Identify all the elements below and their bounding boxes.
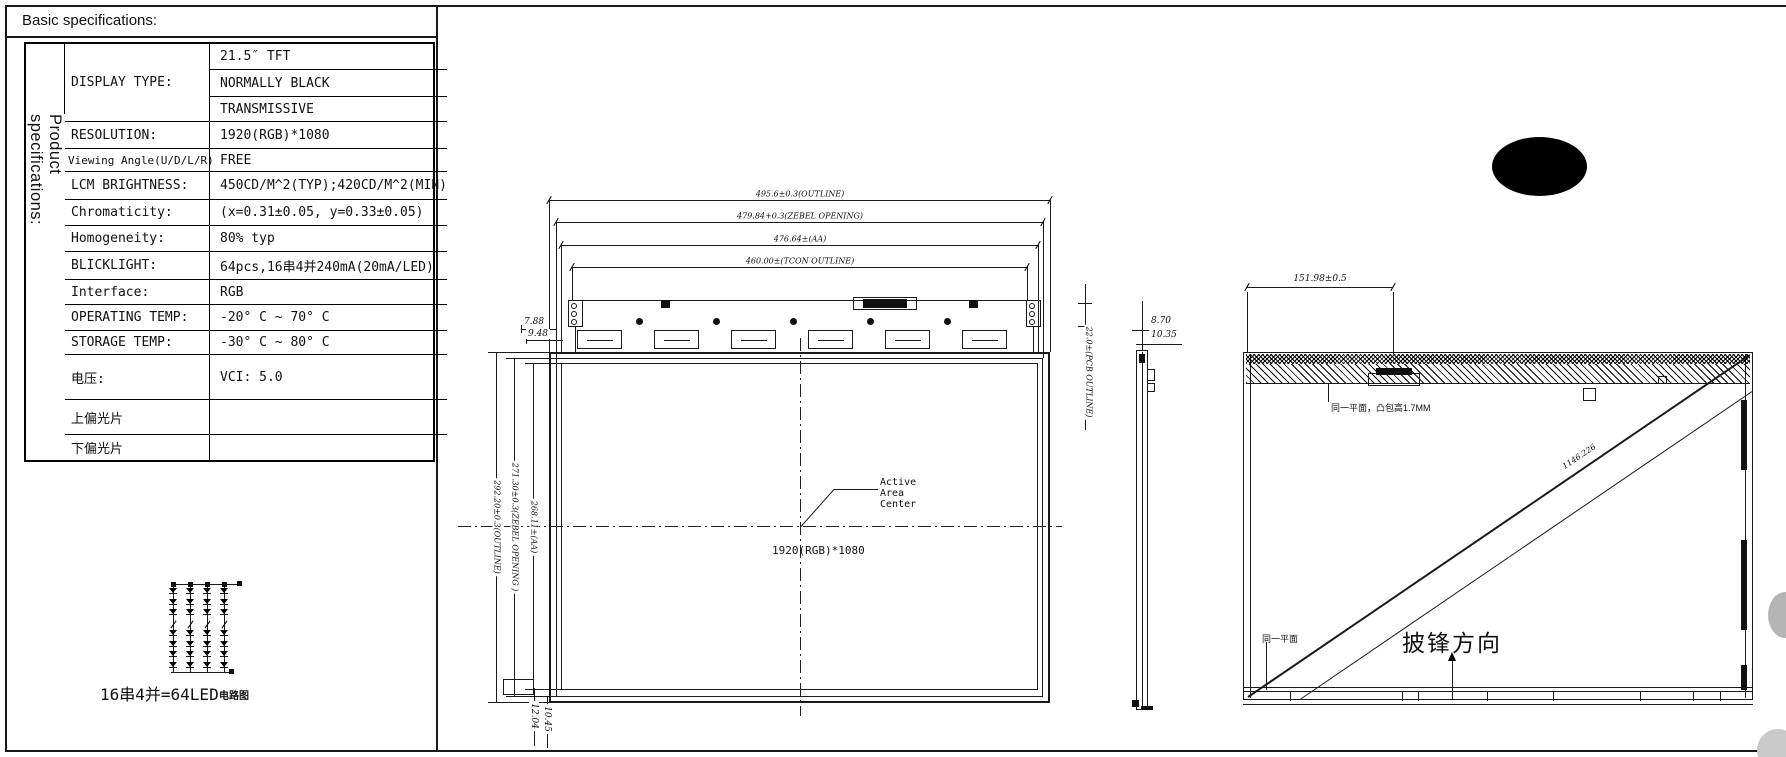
strip-edge: [1033, 327, 1034, 352]
rear-top-hatch: [1246, 364, 1750, 383]
led-cathode-bar: [220, 667, 228, 668]
led-cathode-bar: [220, 646, 228, 647]
stiffener-mark: [818, 340, 844, 341]
spec-label: 上偏光片: [65, 400, 210, 435]
led-cathode-bar: [186, 614, 194, 615]
strip-edge: [575, 327, 576, 352]
spec-label: STORAGE TEMP:: [65, 331, 210, 355]
led-bus-bottom: [171, 672, 232, 673]
dim-870: 8.70: [1149, 316, 1173, 326]
led-cathode-bar: [203, 656, 211, 657]
rear-bottom-tick: [1640, 692, 1641, 701]
led-column-wire: [207, 584, 208, 672]
spec-value: RGB: [210, 280, 447, 305]
dim-extension: [488, 702, 549, 703]
strip-component: [661, 300, 670, 308]
connector-pin: [1029, 303, 1035, 309]
active-area-label: Active: [880, 477, 916, 488]
dim-extension: [488, 352, 549, 353]
dim-width-bezel: 479.84+0.3(ZEBEL OPENING): [735, 212, 865, 221]
dim-height-outline: 292.20±0.3(OUTLINE): [493, 478, 502, 576]
dim-extension: [1247, 292, 1248, 352]
corner-step: [503, 679, 534, 695]
dim-line-tcon-w: [572, 267, 1027, 268]
rear-edge-inner: [1250, 354, 1251, 698]
spec-value-display-type: 21.5″ TFT: [210, 44, 447, 70]
rear-detail-square: [1583, 388, 1596, 401]
led-bus-node: [205, 582, 210, 587]
dim-extension: [556, 222, 557, 358]
led-cathode-bar: [220, 614, 228, 615]
leader-line: [1266, 642, 1267, 690]
dim-line-rear-top: [1247, 287, 1393, 288]
spec-value: VCI: 5.0: [210, 355, 447, 400]
strip-dot: [867, 318, 874, 325]
rear-bottom-tick: [1402, 692, 1403, 701]
dim-width-tcon: 460.00±(TCON OUTLINE): [744, 257, 856, 266]
dim-extension: [525, 363, 561, 364]
led-cathode-bar: [186, 604, 194, 605]
rear-bottom-tick: [1487, 692, 1488, 701]
dim-extension: [572, 267, 573, 300]
strip-dot: [713, 318, 720, 325]
active-area-label: Area: [880, 488, 904, 499]
led-cathode-bar: [186, 635, 194, 636]
led-cathode-bar: [220, 604, 228, 605]
led-cathode-bar: [203, 646, 211, 647]
rear-bottom-line: [1243, 704, 1753, 705]
led-cathode-bar: [203, 614, 211, 615]
flat-note-top: 同一平面，凸包高1.7MM: [1331, 401, 1431, 414]
dim-line-bezel-w: [556, 222, 1043, 223]
dim-line-1035: [1136, 344, 1182, 345]
led-cathode-bar: [186, 667, 194, 668]
dim-tickline: [1078, 303, 1092, 304]
sheet-border-top: [5, 5, 1786, 7]
stiffener-mark: [664, 340, 690, 341]
led-cathode-bar: [220, 635, 228, 636]
sheet-border-bottom: [5, 750, 1786, 752]
led-column-wire: [190, 584, 191, 672]
spec-value: -20° C ~ 70° C: [210, 305, 447, 331]
rear-edge-detail: [1741, 400, 1747, 470]
spec-label: Chromaticity:: [65, 200, 210, 226]
rear-bottom-tick: [1290, 692, 1291, 701]
dim-extension: [561, 245, 562, 352]
spec-value: 450CD/M^2(TYP);420CD/M^2(MIN): [210, 172, 447, 200]
spec-value: [210, 435, 447, 460]
led-cathode-bar: [169, 614, 177, 615]
strip-component: [969, 300, 978, 308]
dim-extension: [1038, 245, 1039, 352]
spec-table: Product specifications:DISPLAY TYPE:21.5…: [24, 42, 435, 462]
rear-bottom-tick: [1418, 692, 1419, 701]
rear-hatch-border: [1246, 383, 1750, 384]
centerline-horizontal: [458, 526, 1062, 527]
side-component: [1147, 383, 1155, 392]
side-profile-inner: [1142, 352, 1143, 708]
connector-pin: [1029, 319, 1035, 325]
dim-1204: 12.04: [529, 701, 539, 731]
spec-value: -30° C ~ 80° C: [210, 331, 447, 355]
led-cathode-bar: [169, 604, 177, 605]
led-cathode-bar: [186, 656, 194, 657]
dim-height-bezel: 271.30±0.3(ZEBEL OPENING ): [511, 461, 520, 594]
led-cathode-bar: [169, 635, 177, 636]
led-bus-node: [222, 582, 227, 587]
side-foot: [1141, 706, 1153, 710]
spec-value-display-type: TRANSMISSIVE: [210, 97, 447, 122]
led-cathode-bar: [169, 646, 177, 647]
spec-value: (x=0.31±0.05, y=0.33±0.05): [210, 200, 447, 226]
pcb-strip-top: [583, 300, 1026, 301]
basic-specs-title: Basic specifications:: [22, 12, 157, 29]
side-foot: [1132, 700, 1139, 707]
led-cathode-bar: [169, 593, 177, 594]
stiffener-mark: [587, 340, 613, 341]
spec-label-display-type: DISPLAY TYPE:: [65, 44, 210, 122]
dim-line-outline-w: [549, 200, 1050, 201]
led-cathode-bar: [169, 656, 177, 657]
dim-extension: [1393, 292, 1394, 354]
spec-label: LCM BRIGHTNESS:: [65, 172, 210, 200]
spec-label: Viewing Angle(U/D/L/R): [65, 149, 210, 172]
led-diagram-label: 16串4并=64LED: [100, 681, 219, 705]
led-column-wire: [173, 584, 174, 672]
side-component: [1147, 369, 1155, 381]
rear-bottom-line: [1243, 687, 1753, 688]
resolution-label: 1920(RGB)*1080: [772, 544, 865, 557]
led-column-wire: [224, 584, 225, 672]
dim-extension: [1050, 200, 1051, 352]
led-diagram-label-suffix: 电路图: [219, 687, 249, 702]
dim-1035: 10.35: [1149, 330, 1179, 340]
stiffener-mark: [741, 340, 767, 341]
connector-pin: [1029, 311, 1035, 317]
rear-component: [1376, 368, 1412, 375]
spec-value-display-type: NORMALLY BLACK: [210, 70, 447, 97]
spec-sheet: Basic specifications:495.6±0.3(OUTLINE)4…: [0, 0, 1786, 757]
led-cathode-bar: [186, 646, 194, 647]
dim-width-aa: 476.64±(AA): [772, 235, 829, 244]
rear-detail-square: [1658, 376, 1667, 384]
leader-line: [834, 489, 878, 490]
edge-stamp: [1757, 729, 1786, 757]
strip-dot: [636, 318, 643, 325]
spec-label: 电压:: [65, 355, 210, 400]
spec-value: 64pcs,16串4并240mA(20mA/LED): [210, 252, 447, 280]
dim-788: 7.88: [522, 317, 546, 327]
sheet-border-left: [5, 5, 7, 752]
spec-value: FREE: [210, 149, 447, 172]
stiffener-mark: [972, 340, 998, 341]
dim-948: 9.48: [526, 329, 550, 339]
spec-label: Interface:: [65, 280, 210, 305]
strip-dot: [944, 318, 951, 325]
stiffener-mark: [895, 340, 921, 341]
leader-arrow-up: [1448, 652, 1456, 661]
led-bus-node: [229, 669, 234, 674]
spec-label: BLICKLIGHT:: [65, 252, 210, 280]
spec-label: OPERATING TEMP:: [65, 305, 210, 331]
spec-label: Homogeneity:: [65, 226, 210, 252]
spec-label: 下偏光片: [65, 435, 210, 460]
led-cathode-bar: [220, 593, 228, 594]
dim-line-aa-w: [561, 245, 1038, 246]
active-area-label: Center: [880, 499, 916, 510]
rear-bottom-tick: [1720, 692, 1721, 701]
edge-stamp: [1768, 592, 1786, 638]
led-cathode-bar: [203, 667, 211, 668]
led-bus-node: [171, 582, 176, 587]
spec-label: RESOLUTION:: [65, 122, 210, 149]
led-cathode-bar: [203, 604, 211, 605]
spec-value: [210, 400, 447, 435]
connector-pin: [571, 303, 577, 309]
title-box-border: [5, 36, 437, 38]
rear-bottom-tick: [1553, 692, 1554, 701]
dim-extension: [1027, 267, 1028, 300]
tcon-connector: [863, 299, 907, 308]
leader-line: [1328, 384, 1329, 402]
rear-edge-detail: [1741, 540, 1747, 630]
spec-value: 1920(RGB)*1080: [210, 122, 447, 149]
led-cathode-bar: [186, 593, 194, 594]
dim-extension: [1043, 222, 1044, 358]
dim-pcb-outline: 22.0±(PCB OUTLINE): [1085, 325, 1094, 420]
dim-line-948: [526, 340, 563, 341]
spec-value: 80% typ: [210, 226, 447, 252]
dim-1045: 10.45: [542, 704, 552, 734]
rear-bottom-line: [1243, 691, 1753, 692]
connector-pin: [571, 311, 577, 317]
dim-rear-top: 151.98±0.5: [1291, 274, 1348, 284]
leader-line: [1452, 660, 1453, 700]
strip-dot: [790, 318, 797, 325]
ink-blot: [1492, 137, 1587, 196]
product-specifications-header: Product specifications:: [26, 44, 65, 114]
dim-height-aa: 268.11±(AA): [530, 499, 539, 556]
led-cathode-bar: [203, 593, 211, 594]
dim-tick: [1390, 283, 1395, 291]
led-bus-node: [188, 582, 193, 587]
led-cathode-bar: [203, 635, 211, 636]
side-component: [1139, 354, 1145, 363]
connector-pin: [571, 319, 577, 325]
rear-bottom-tick: [1693, 692, 1694, 701]
led-cathode-bar: [169, 667, 177, 668]
led-cathode-bar: [220, 656, 228, 657]
rear-top-hatch-dense: [1246, 354, 1750, 364]
flat-note-bottom: 同一平面: [1262, 632, 1298, 645]
led-bus-node: [237, 581, 242, 586]
dim-width-outline: 495.6±0.3(OUTLINE): [754, 190, 847, 199]
